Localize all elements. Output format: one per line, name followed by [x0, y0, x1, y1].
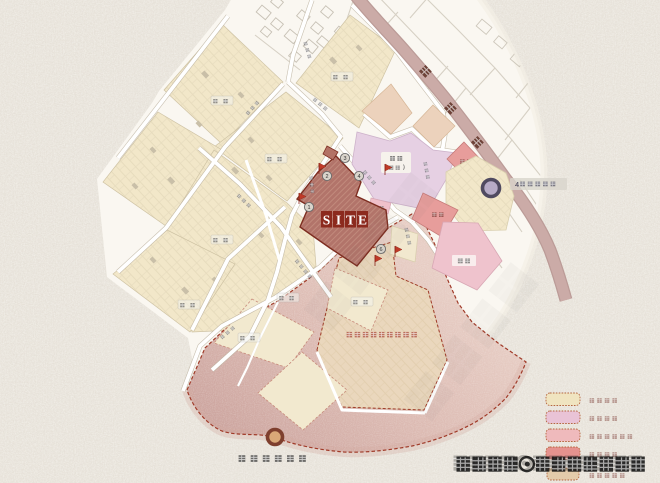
- svg-text:I: I: [336, 213, 341, 228]
- svg-text:E: E: [358, 213, 367, 228]
- svg-text:4: 4: [357, 174, 360, 180]
- svg-text:S: S: [323, 213, 331, 228]
- svg-text:4: 4: [515, 180, 519, 189]
- svg-text:2: 2: [325, 174, 328, 180]
- svg-text:3: 3: [343, 156, 346, 162]
- svg-text:T: T: [346, 213, 355, 228]
- svg-text:1: 1: [307, 205, 310, 211]
